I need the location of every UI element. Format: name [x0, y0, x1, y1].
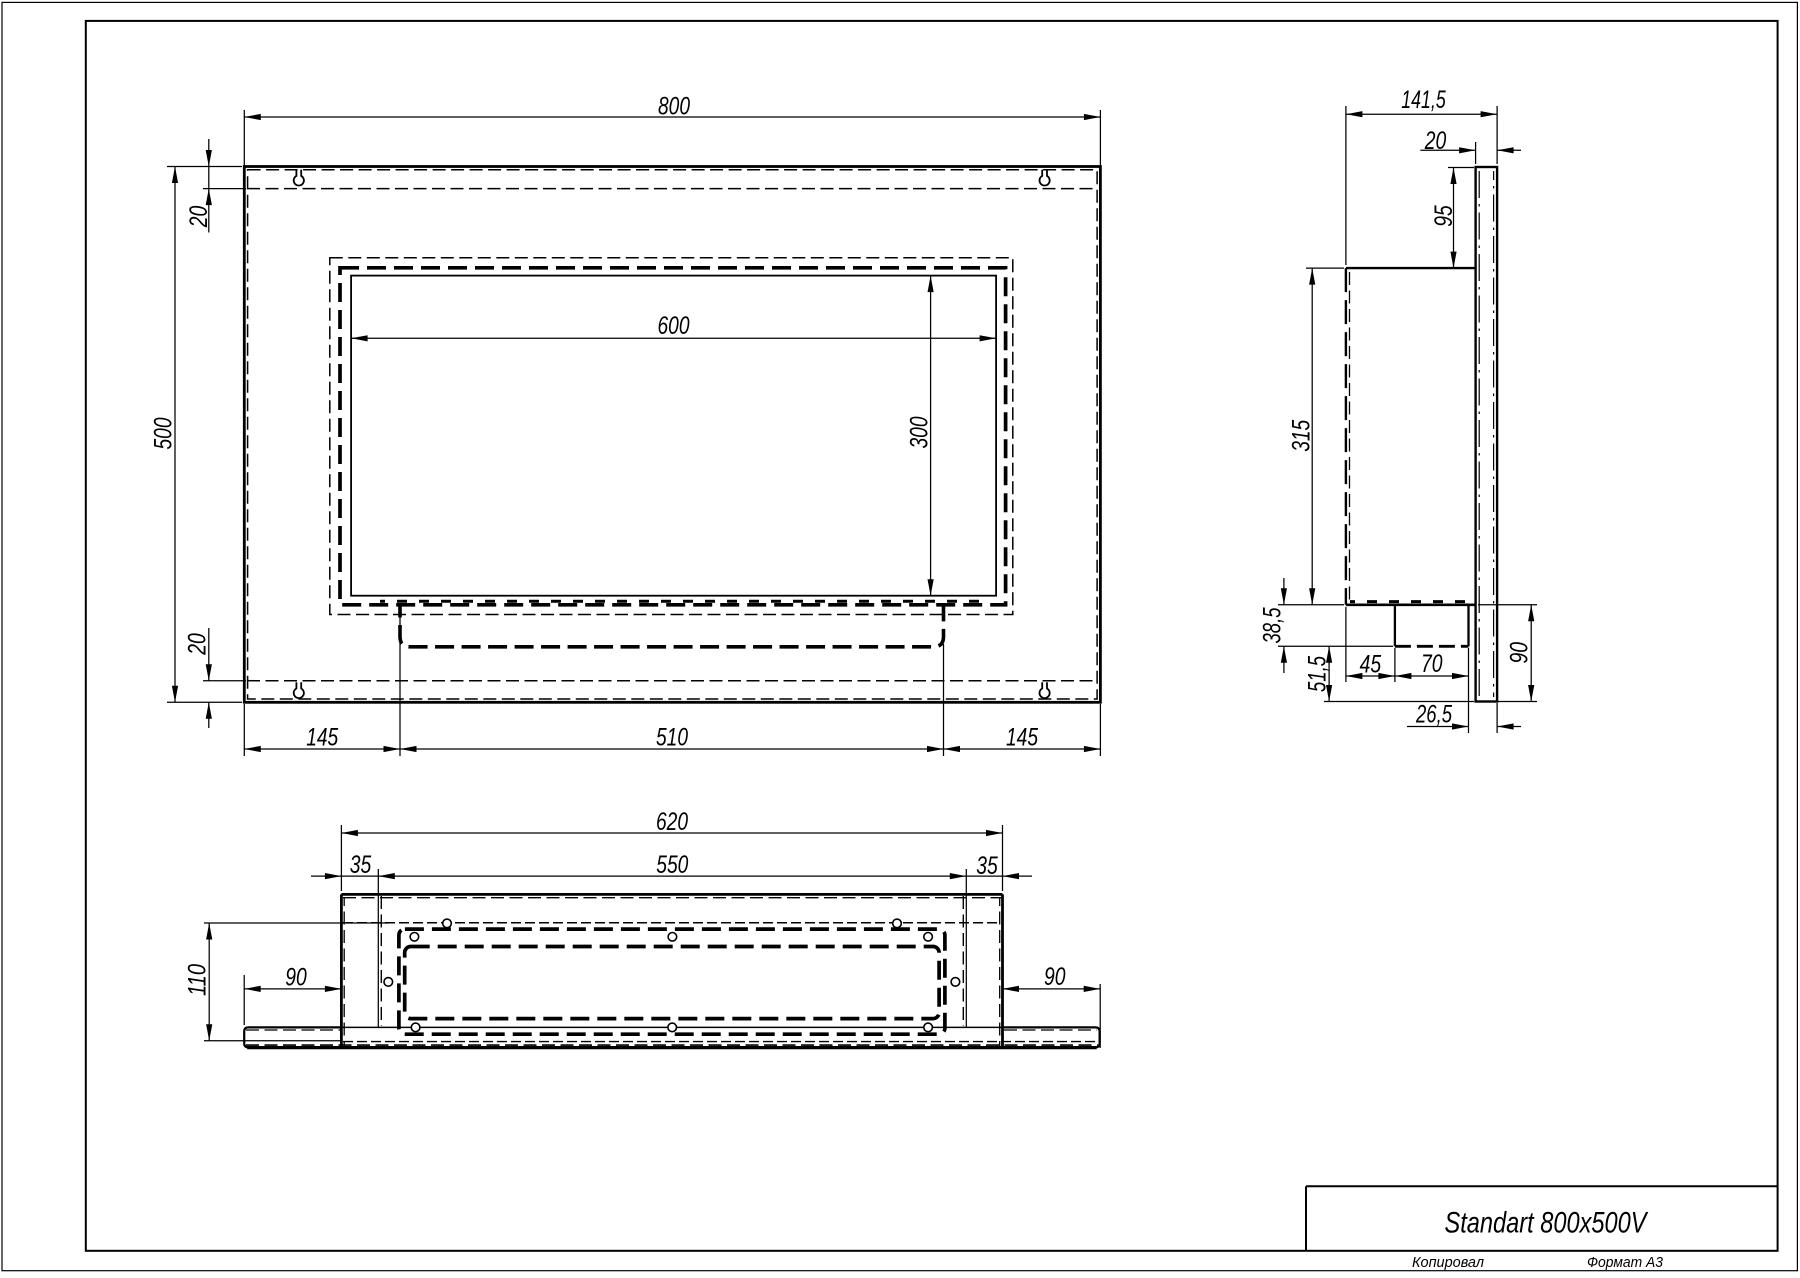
- svg-text:550: 550: [656, 851, 688, 879]
- svg-text:90: 90: [285, 963, 307, 991]
- svg-text:Standart 800x500V: Standart 800x500V: [1445, 1207, 1649, 1240]
- svg-text:110: 110: [184, 964, 212, 996]
- svg-text:45: 45: [1360, 651, 1382, 679]
- svg-text:500: 500: [150, 417, 178, 449]
- svg-text:620: 620: [656, 808, 688, 836]
- svg-text:35: 35: [976, 852, 998, 880]
- svg-text:20: 20: [185, 206, 213, 228]
- svg-text:20: 20: [183, 633, 211, 655]
- svg-text:145: 145: [306, 724, 338, 752]
- svg-text:35: 35: [350, 851, 372, 879]
- svg-text:Копировал: Копировал: [1412, 1254, 1485, 1271]
- svg-text:315: 315: [1287, 420, 1315, 452]
- svg-text:26,5: 26,5: [1415, 701, 1452, 729]
- svg-text:95: 95: [1430, 205, 1458, 227]
- svg-text:141,5: 141,5: [1401, 86, 1445, 114]
- svg-text:90: 90: [1506, 642, 1534, 664]
- svg-text:51,5: 51,5: [1304, 656, 1332, 692]
- svg-text:145: 145: [1006, 724, 1038, 752]
- svg-text:90: 90: [1044, 963, 1066, 991]
- svg-text:38,5: 38,5: [1258, 607, 1286, 643]
- svg-text:70: 70: [1421, 650, 1443, 678]
- svg-text:510: 510: [656, 724, 688, 752]
- svg-text:800: 800: [658, 93, 690, 121]
- svg-text:300: 300: [906, 416, 934, 448]
- svg-text:20: 20: [1424, 127, 1446, 155]
- svg-text:Формат А3: Формат А3: [1587, 1254, 1664, 1271]
- svg-text:600: 600: [658, 312, 690, 340]
